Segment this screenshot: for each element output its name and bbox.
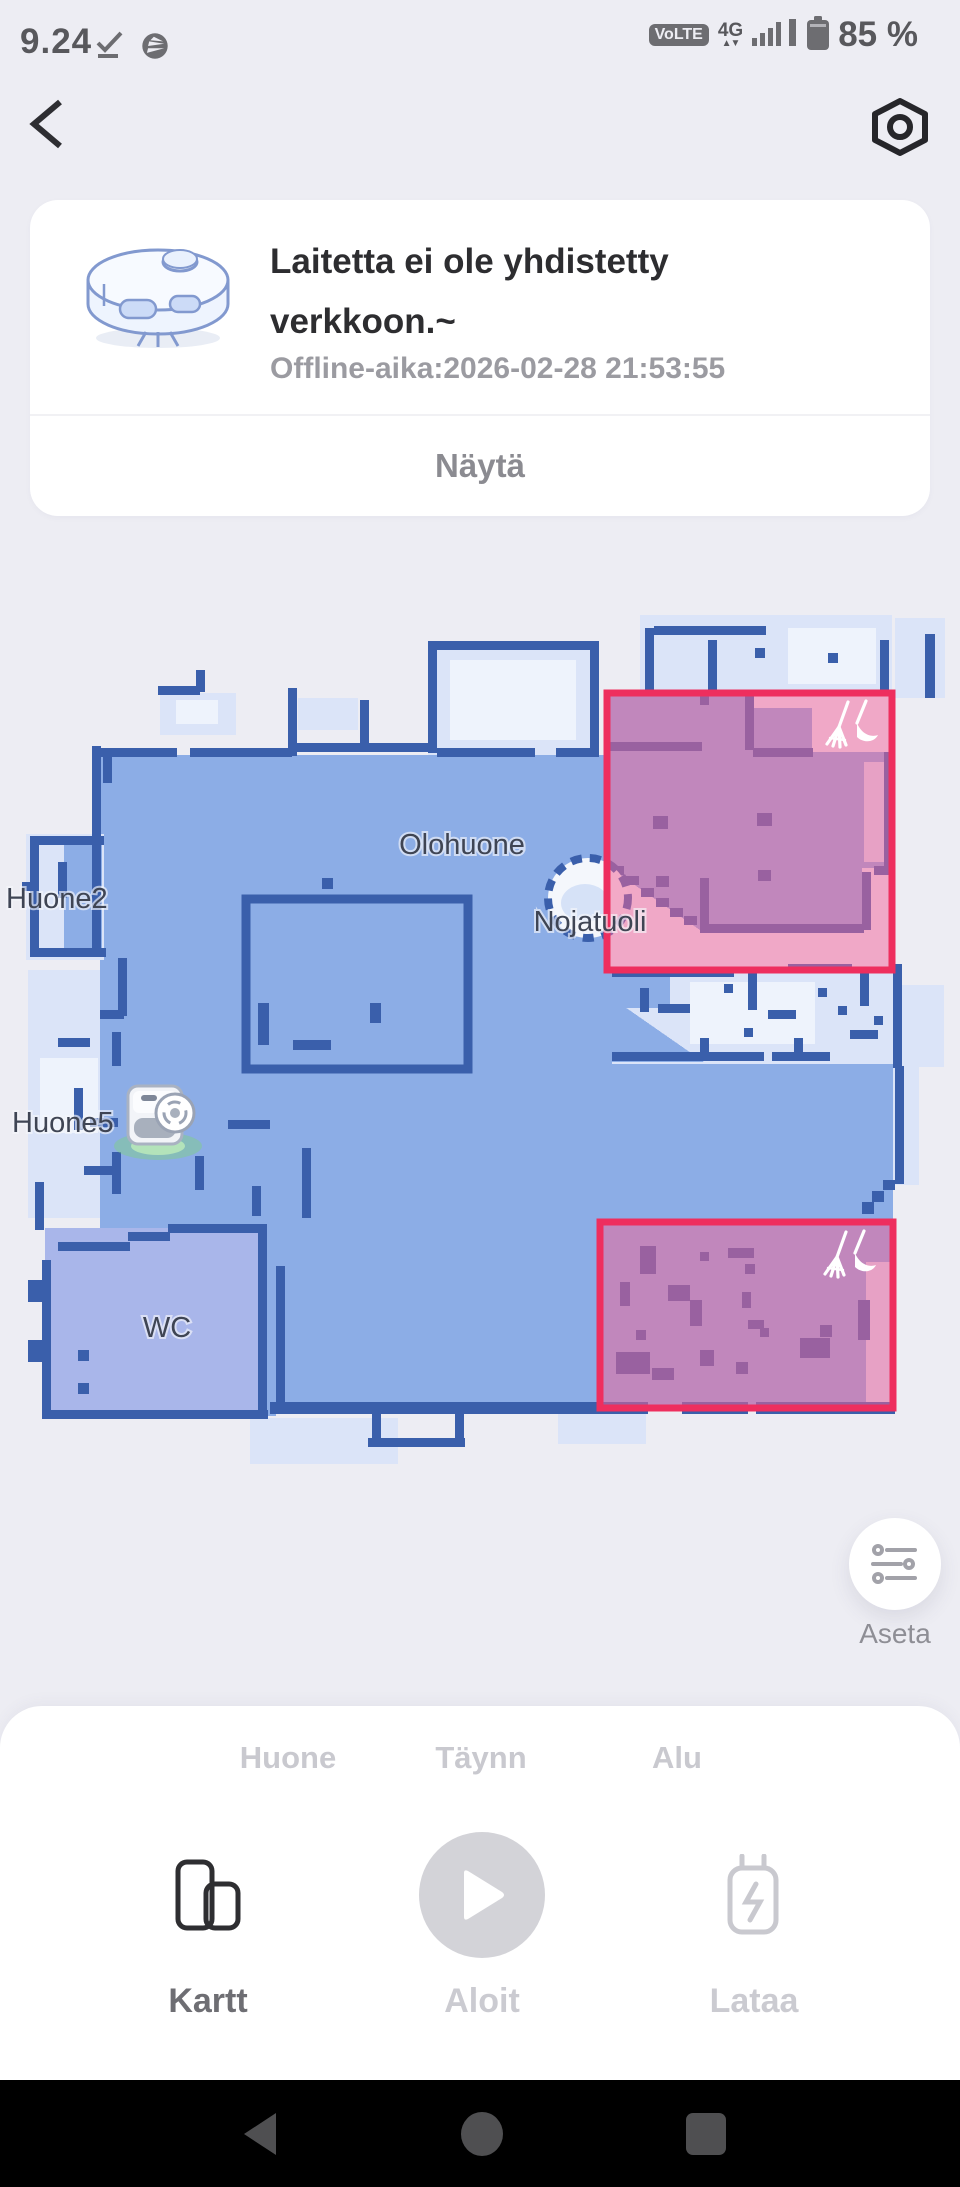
status-bar: 9.24 VoLTE 4G ▲▼ <box>0 0 960 70</box>
clock: 9.24 <box>20 22 92 62</box>
room-label-nojatuoli: Nojatuoli <box>534 906 647 938</box>
map-mode-label: Kartt <box>168 1982 247 2021</box>
start-cleaning-button[interactable] <box>419 1832 545 1958</box>
robot-vacuum-app-screen: 9.24 VoLTE 4G ▲▼ <box>0 0 960 2187</box>
tab-alu[interactable]: Alu <box>652 1740 702 1776</box>
floorplan-icon <box>172 1858 244 1934</box>
offline-timestamp: Offline-aika:2026-02-28 21:53:55 <box>270 352 725 386</box>
charge-label: Lataa <box>710 1982 799 2021</box>
nav-home-icon <box>460 2112 504 2156</box>
play-icon <box>456 1867 508 1923</box>
battery-icon <box>807 16 829 55</box>
app-bar <box>0 70 960 190</box>
gear-icon <box>866 94 934 160</box>
chevron-left-icon <box>34 102 60 146</box>
nav-recents-icon <box>686 2113 726 2155</box>
bottom-sheet: Huone Täynn Alu <box>0 1706 960 2080</box>
map-settings-button[interactable] <box>849 1518 941 1610</box>
robot-vacuum-illustration <box>58 220 258 365</box>
start-label: Aloit <box>444 1982 520 2021</box>
volte-badge: VoLTE <box>649 24 709 46</box>
settings-button[interactable] <box>866 94 934 160</box>
android-navigation-bar <box>0 2080 960 2187</box>
battery-percent: 85 % <box>838 15 918 55</box>
check-underline-icon <box>95 30 125 65</box>
network-type-indicator: 4G ▲▼ <box>718 21 743 49</box>
charger-icon <box>722 1854 784 1936</box>
map-canvas[interactable]: Huone2 Olohuone Nojatuoli Huone5 WC <box>0 560 960 1480</box>
tab-taynn[interactable]: Täynn <box>435 1740 526 1776</box>
notification-app-icon <box>140 31 170 66</box>
room-label-wc: WC <box>143 1312 191 1344</box>
sliders-icon <box>871 1544 919 1584</box>
back-button[interactable] <box>22 92 78 156</box>
room-label-olohuone: Olohuone <box>399 829 525 861</box>
charge-button[interactable] <box>722 1854 784 1936</box>
offline-title: Laitetta ei ole yhdistetty verkkoon.~ <box>270 232 669 352</box>
room-label-huone2: Huone2 <box>6 883 108 915</box>
nav-back-icon <box>242 2113 278 2155</box>
cleaning-zone-top[interactable] <box>607 693 892 970</box>
cleaning-zone-bottom[interactable] <box>600 1222 893 1408</box>
room-label-huone5: Huone5 <box>12 1107 114 1139</box>
signal-bars-icon <box>752 18 798 53</box>
show-button[interactable]: Näytä <box>30 416 930 516</box>
nav-recents-button[interactable] <box>666 2080 746 2187</box>
map-mode-button[interactable] <box>172 1858 244 1934</box>
map-settings-label: Aseta <box>834 1618 956 1650</box>
nav-home-button[interactable] <box>442 2080 522 2187</box>
tab-huone[interactable]: Huone <box>240 1740 336 1776</box>
device-status-card[interactable]: Laitetta ei ole yhdistetty verkkoon.~ Of… <box>30 200 930 516</box>
nav-back-button[interactable] <box>220 2080 300 2187</box>
